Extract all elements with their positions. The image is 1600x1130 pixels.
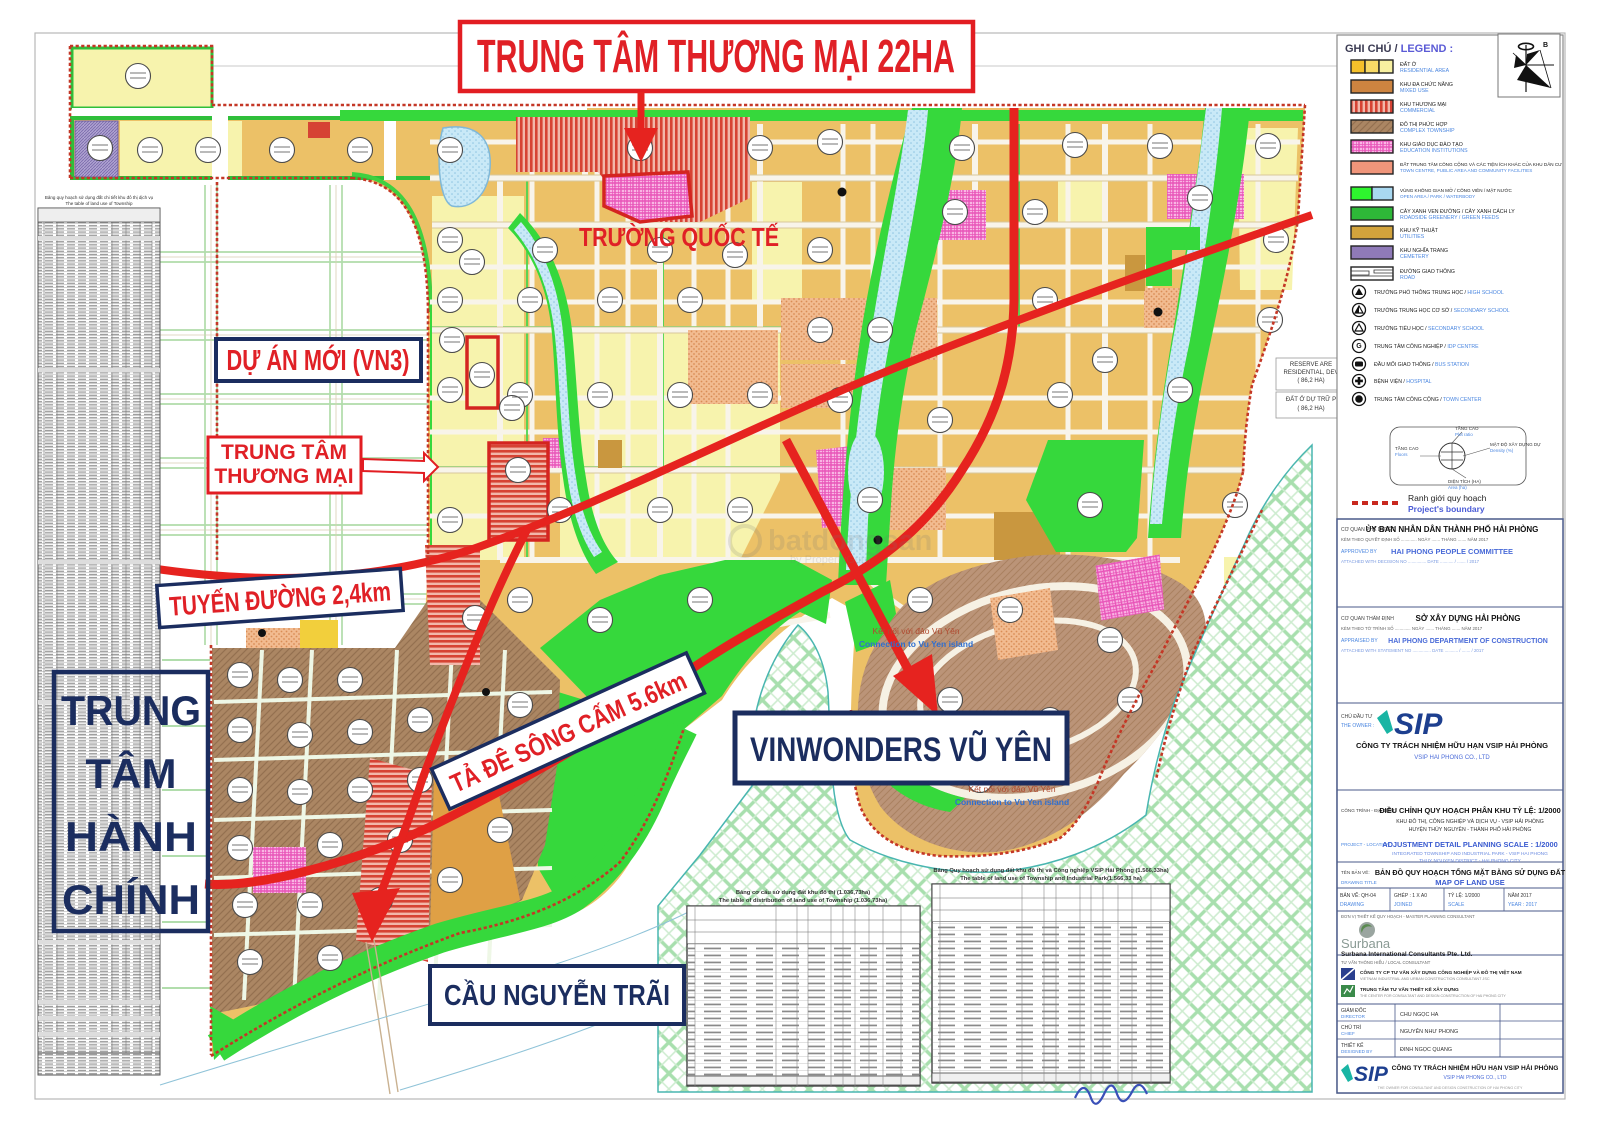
svg-text:Plot ratio: Plot ratio (1455, 432, 1473, 437)
svg-text:TOWN CENTRE, PUBLIC AREA AND C: TOWN CENTRE, PUBLIC AREA AND COMMUNITY F… (1400, 168, 1532, 173)
svg-text:RESIDENTIAL, DEV: RESIDENTIAL, DEV (1283, 370, 1338, 376)
svg-text:CHỦ TRÌ: CHỦ TRÌ (1341, 1024, 1362, 1031)
svg-text:HAI PHONG DEPARTMENT OF CONSTR: HAI PHONG DEPARTMENT OF CONSTRUCTION (1388, 638, 1548, 645)
svg-text:GIÁM ĐỐC: GIÁM ĐỐC (1341, 1007, 1367, 1014)
svg-text:DRAWING: DRAWING (1340, 902, 1364, 908)
svg-text:SIP: SIP (1354, 1063, 1389, 1086)
svg-text:CẦU NGUYỄN TRÃI: CẦU NGUYỄN TRÃI (444, 978, 670, 1012)
svg-text:KHU ĐA CHỨC NĂNG: KHU ĐA CHỨC NĂNG (1400, 81, 1453, 88)
svg-text:KÈM THEO TỜ TRÌNH SỐ .........: KÈM THEO TỜ TRÌNH SỐ ............. NGÀY … (1341, 626, 1483, 631)
svg-text:UTILITIES: UTILITIES (1400, 234, 1425, 240)
svg-text:HAI PHONG PEOPLE COMMITTEE: HAI PHONG PEOPLE COMMITTEE (1391, 547, 1513, 556)
svg-text:BỆNH VIỆN / HOSPITAL: BỆNH VIỆN / HOSPITAL (1374, 377, 1432, 385)
svg-text:CÂY XANH VEN ĐƯỜNG / CÂY XANH: CÂY XANH VEN ĐƯỜNG / CÂY XANH CÁCH LY (1400, 208, 1515, 215)
svg-text:TẦNG CAO: TẦNG CAO (1455, 425, 1479, 431)
svg-text:Connection to Vu Yen island: Connection to Vu Yen island (859, 639, 973, 649)
svg-text:ROADSIDE GREENERY / GREEN FEED: ROADSIDE GREENERY / GREEN FEEDS (1400, 215, 1500, 221)
svg-text:MIXED USE: MIXED USE (1400, 88, 1429, 94)
svg-text:COMPLEX TOWNSHIP: COMPLEX TOWNSHIP (1400, 128, 1455, 134)
svg-text:CƠ QUAN THẨM ĐỊNH: CƠ QUAN THẨM ĐỊNH (1341, 615, 1394, 622)
svg-text:HUYỆN THỦY NGUYÊN - THÀNH PHỐ: HUYỆN THỦY NGUYÊN - THÀNH PHỐ HẢI PHÒNG (1409, 825, 1532, 833)
svg-text:ĐÔ THỊ PHỨC HỢP: ĐÔ THỊ PHỨC HỢP (1400, 121, 1448, 128)
svg-text:ATTACHED WITH STATEMENT NO ...: ATTACHED WITH STATEMENT NO .............… (1341, 648, 1484, 653)
svg-text:THIẾT KẾ: THIẾT KẾ (1341, 1042, 1364, 1049)
svg-text:( 86,2 HA): ( 86,2 HA) (1297, 406, 1324, 412)
svg-text:ĐẤT TRUNG TÂM CÔNG CỘNG VÀ CÁC: ĐẤT TRUNG TÂM CÔNG CỘNG VÀ CÁC TIỆN ÍCH … (1400, 160, 1562, 167)
svg-text:ROAD: ROAD (1400, 275, 1415, 281)
svg-text:DRAWING TITLE: DRAWING TITLE (1341, 880, 1377, 885)
svg-text:TRUNG TÂM TƯ VẤN THIẾT KẾ XÂY: TRUNG TÂM TƯ VẤN THIẾT KẾ XÂY DỰNG (1360, 986, 1459, 993)
svg-text:COMMERCIAL: COMMERCIAL (1400, 108, 1435, 114)
svg-text:VSIP HAI PHONG CO., LTD: VSIP HAI PHONG CO., LTD (1444, 1075, 1507, 1081)
svg-text:Ranh giới quy hoạch: Ranh giới quy hoạch (1408, 493, 1487, 503)
svg-text:Area (ha): Area (ha) (1448, 485, 1467, 490)
svg-text:VÙNG KHÔNG GIAN MỞ / CÔNG VIÊN: VÙNG KHÔNG GIAN MỞ / CÔNG VIÊN / MẶT NƯỚ… (1400, 186, 1512, 193)
svg-text:CHU NGỌC HA: CHU NGỌC HA (1400, 1012, 1439, 1018)
svg-text:TÂM: TÂM (86, 749, 177, 797)
svg-text:INTEGRATED TOWNSHIP AND INDUST: INTEGRATED TOWNSHIP AND INDUSTRIAL PARK … (1392, 851, 1548, 857)
svg-text:Kết nối với đảo Vũ Yên: Kết nối với đảo Vũ Yên (872, 626, 959, 636)
svg-text:CHỦ ĐẦU TƯ: CHỦ ĐẦU TƯ (1341, 713, 1373, 720)
svg-text:NGUYỄN NHƯ PHONG: NGUYỄN NHƯ PHONG (1400, 1028, 1458, 1035)
svg-text:CHIEF: CHIEF (1341, 1031, 1355, 1036)
svg-text:YEAR : 2017: YEAR : 2017 (1508, 902, 1537, 908)
svg-text:TRUNG TÂM: TRUNG TÂM (221, 440, 347, 464)
svg-text:ĐẦU MỐI GIAO THÔNG / BUS STATI: ĐẦU MỐI GIAO THÔNG / BUS STATION (1374, 361, 1469, 368)
svg-text:by PropertyGuru: by PropertyGuru (790, 554, 871, 566)
svg-text:RESIDENTIAL AREA: RESIDENTIAL AREA (1400, 68, 1450, 74)
svg-text:HÀNH: HÀNH (65, 813, 197, 860)
svg-text:KHU KỸ THUẬT: KHU KỸ THUẬT (1400, 227, 1439, 234)
svg-text:ATTACHED WITH DECISION NO ....: ATTACHED WITH DECISION NO ..............… (1341, 559, 1480, 564)
svg-text:TÊN BẢN VẼ:: TÊN BẢN VẼ: (1341, 868, 1370, 875)
svg-text:TRUNG TÂM CÔNG CỘNG / TOWN CEN: TRUNG TÂM CÔNG CỘNG / TOWN CENTER (1374, 396, 1482, 403)
svg-text:ĐƠN VỊ THIẾT KẾ QUY HOẠCH - MA: ĐƠN VỊ THIẾT KẾ QUY HOẠCH - MASTER PLANN… (1341, 914, 1475, 919)
svg-text:B: B (1543, 42, 1548, 49)
svg-text:SỞ XÂY DỰNG HẢI PHÒNG: SỞ XÂY DỰNG HẢI PHÒNG (1416, 614, 1521, 623)
svg-text:APPROVED BY: APPROVED BY (1341, 549, 1378, 555)
svg-text:CEMETERY: CEMETERY (1400, 254, 1429, 260)
svg-text:APPRAISED BY: APPRAISED BY (1341, 638, 1378, 644)
svg-text:ĐẤT Ở DỰ TRỮ P: ĐẤT Ở DỰ TRỮ P (1286, 396, 1336, 403)
svg-text:KHU GIÁO DỤC ĐÀO TẠO: KHU GIÁO DỤC ĐÀO TẠO (1400, 141, 1463, 148)
svg-text:BẢN ĐỒ QUY HOẠCH TỔNG MẶT BẰNG: BẢN ĐỒ QUY HOẠCH TỔNG MẶT BẰNG SỬ DỤNG Đ… (1375, 867, 1566, 877)
svg-text:SCALE: SCALE (1448, 902, 1465, 908)
svg-text:THE CENTER FOR CONSULTANT AND: THE CENTER FOR CONSULTANT AND DESIGN CON… (1360, 994, 1506, 998)
svg-text:TRƯỜNG TIỂU HỌC / SECONDARY SC: TRƯỜNG TIỂU HỌC / SECONDARY SCHOOL (1374, 325, 1484, 332)
svg-text:The table of distribution of l: The table of distribution of land use of… (719, 898, 887, 904)
svg-text:Density (%): Density (%) (1490, 448, 1514, 453)
svg-text:KÈM THEO QUYẾT ĐỊNH SỐ .......: KÈM THEO QUYẾT ĐỊNH SỐ ............. NGÀ… (1341, 537, 1489, 542)
svg-text:Bảng quy hoạch sử dụng đất chi: Bảng quy hoạch sử dụng đất chi tiết khu … (45, 194, 154, 200)
svg-text:DIRECTOR: DIRECTOR (1341, 1014, 1366, 1019)
svg-text:THUY NGUYEN DISTRICT - HAI PHO: THUY NGUYEN DISTRICT - HAI PHONG CITY (1419, 858, 1521, 864)
svg-text:KHU ĐÔ THỊ, CÔNG NGHIỆP VÀ DỊC: KHU ĐÔ THỊ, CÔNG NGHIỆP VÀ DỊCH VỤ - VSI… (1396, 817, 1544, 825)
svg-text:TRƯỜNG TRUNG HỌC CƠ SỞ / SECON: TRƯỜNG TRUNG HỌC CƠ SỞ / SECONDARY SCHOO… (1374, 307, 1510, 314)
svg-text:Connection to Vu Yen island: Connection to Vu Yen island (955, 797, 1069, 807)
svg-text:TRUNG TÂM CÔNG NGHIỆP / IDP CE: TRUNG TÂM CÔNG NGHIỆP / IDP CENTRE (1374, 342, 1479, 350)
svg-text:Surbana International Consulta: Surbana International Consultants Pte. L… (1341, 951, 1473, 958)
svg-text:Surbana: Surbana (1341, 936, 1391, 951)
svg-text:Bảng Quy hoạch sử dụng đất khu: Bảng Quy hoạch sử dụng đất khu đô thị và… (933, 867, 1168, 874)
svg-text:The table of land use of Towns: The table of land use of Township (66, 201, 133, 206)
svg-text:ADJUSTMENT DETAIL PLANNING SCA: ADJUSTMENT DETAIL PLANNING SCALE : 1/200… (1382, 840, 1557, 849)
svg-text:ỦY BAN NHÂN DÂN THÀNH PHỐ HẢI: ỦY BAN NHÂN DÂN THÀNH PHỐ HẢI PHÒNG (1366, 524, 1539, 534)
svg-text:TỶ LỆ: 1/2000: TỶ LỆ: 1/2000 (1448, 891, 1480, 899)
svg-text:ĐẤT Ở: ĐẤT Ở (1400, 61, 1417, 68)
svg-text:VIETNAM INDUSTRIAL AND URBAN C: VIETNAM INDUSTRIAL AND URBAN CONSTRUCTIO… (1360, 977, 1490, 981)
svg-text:TRUNG: TRUNG (61, 687, 201, 734)
svg-text:DỰ ÁN MỚI (VN3): DỰ ÁN MỚI (VN3) (227, 343, 410, 377)
svg-text:THE OWNER :: THE OWNER : (1341, 723, 1374, 729)
svg-text:THE OWNER FOR CONSULTANT AND D: THE OWNER FOR CONSULTANT AND DESIGN CONS… (1378, 1086, 1523, 1090)
svg-text:MẬT ĐỘ XÂY DỰNG DỰ: MẬT ĐỘ XÂY DỰNG DỰ (1490, 441, 1541, 447)
svg-text:TƯ VẤN THÔNG HIỂU / LOCAL CONS: TƯ VẤN THÔNG HIỂU / LOCAL CONSULTANT (1341, 960, 1431, 965)
svg-text:Bảng cơ cấu sử dụng đất khu đô: Bảng cơ cấu sử dụng đất khu đô thị (1.03… (736, 889, 870, 896)
svg-text:BẢN VẼ: QH-04: BẢN VẼ: QH-04 (1340, 892, 1376, 899)
svg-text:TRƯỜNG QUỐC TẾ: TRƯỜNG QUỐC TẾ (579, 222, 779, 252)
svg-text:TRƯỜNG PHỔ THÔNG TRUNG HỌC / H: TRƯỜNG PHỔ THÔNG TRUNG HỌC / HIGH SCHOOL (1374, 289, 1504, 296)
svg-text:The table of land use of Towns: The table of land use of Township and In… (960, 876, 1142, 882)
svg-text:Floors: Floors (1395, 452, 1408, 457)
svg-text:MAP OF LAND USE: MAP OF LAND USE (1435, 878, 1504, 887)
svg-text:CHÍNH: CHÍNH (62, 876, 200, 923)
svg-text:VSIP HAI PHONG CO., LTD: VSIP HAI PHONG CO., LTD (1414, 755, 1490, 761)
svg-text:TẦNG CAO: TẦNG CAO (1395, 445, 1419, 451)
svg-text:THƯƠNG MẠI: THƯƠNG MẠI (214, 465, 353, 488)
svg-text:DESIGNED BY: DESIGNED BY (1341, 1049, 1372, 1054)
svg-text:ĐƯỜNG GIAO THÔNG: ĐƯỜNG GIAO THÔNG (1400, 268, 1455, 275)
svg-text:GHI CHÚ / LEGEND :: GHI CHÚ / LEGEND : (1345, 42, 1453, 55)
svg-text:NĂM 2017: NĂM 2017 (1508, 892, 1532, 899)
svg-text:GHÉP : 1 X A0: GHÉP : 1 X A0 (1394, 892, 1427, 899)
svg-text:EDUCATION INSTITUTIONS: EDUCATION INSTITUTIONS (1400, 148, 1468, 154)
svg-text:KHU NGHĨA TRANG: KHU NGHĨA TRANG (1400, 247, 1448, 254)
svg-text:TRUNG TÂM THƯƠNG MẠI 22HA: TRUNG TÂM THƯƠNG MẠI 22HA (477, 30, 955, 82)
svg-text:( 86,2 HA): ( 86,2 HA) (1297, 378, 1324, 384)
svg-text:VINWONDERS VŨ YÊN: VINWONDERS VŨ YÊN (750, 731, 1052, 769)
svg-text:CÔNG TY TRÁCH NHIỆM HỮU HẠN VS: CÔNG TY TRÁCH NHIỆM HỮU HẠN VSIP HẢI PHÒ… (1356, 741, 1548, 750)
svg-text:ĐINH NGỌC QUANG: ĐINH NGỌC QUANG (1400, 1047, 1452, 1053)
svg-text:RESERVE ARE: RESERVE ARE (1290, 362, 1332, 368)
svg-text:DIỆN TÍCH (HA): DIỆN TÍCH (HA) (1448, 477, 1481, 484)
svg-text:JOINED: JOINED (1394, 902, 1413, 908)
svg-text:OPEN AREA / PARK / WATERBODY: OPEN AREA / PARK / WATERBODY (1400, 194, 1475, 199)
svg-text:SIP: SIP (1394, 708, 1443, 741)
svg-text:batdongsan: batdongsan (768, 525, 932, 557)
svg-text:CÔNG TY TRÁCH NHIỆM HỮU HẠN VS: CÔNG TY TRÁCH NHIỆM HỮU HẠN VSIP HẢI PHÒ… (1392, 1063, 1559, 1072)
svg-text:Project's boundary: Project's boundary (1408, 504, 1485, 514)
svg-text:ĐIỀU CHỈNH QUY HOẠCH PHÂN KHU: ĐIỀU CHỈNH QUY HOẠCH PHÂN KHU TỶ LỆ: 1/2… (1379, 805, 1560, 815)
svg-text:G: G (1356, 343, 1362, 350)
